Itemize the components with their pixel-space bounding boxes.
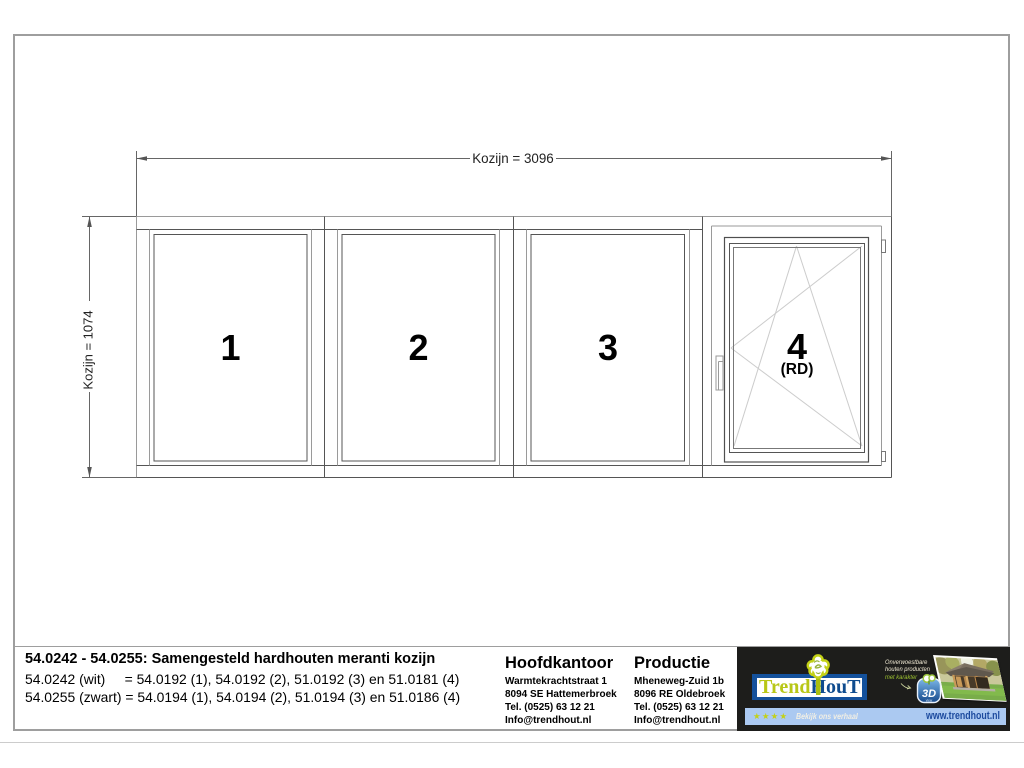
- svg-text:Kozijn = 1074: Kozijn = 1074: [81, 310, 96, 389]
- svg-text:3: 3: [598, 327, 618, 368]
- svg-text:view: view: [926, 699, 933, 703]
- svg-text:Kozijn = 3096: Kozijn = 3096: [472, 151, 554, 166]
- svg-text:2: 2: [408, 327, 428, 368]
- svg-text:1: 1: [220, 327, 240, 368]
- svg-text:(RD): (RD): [781, 361, 814, 378]
